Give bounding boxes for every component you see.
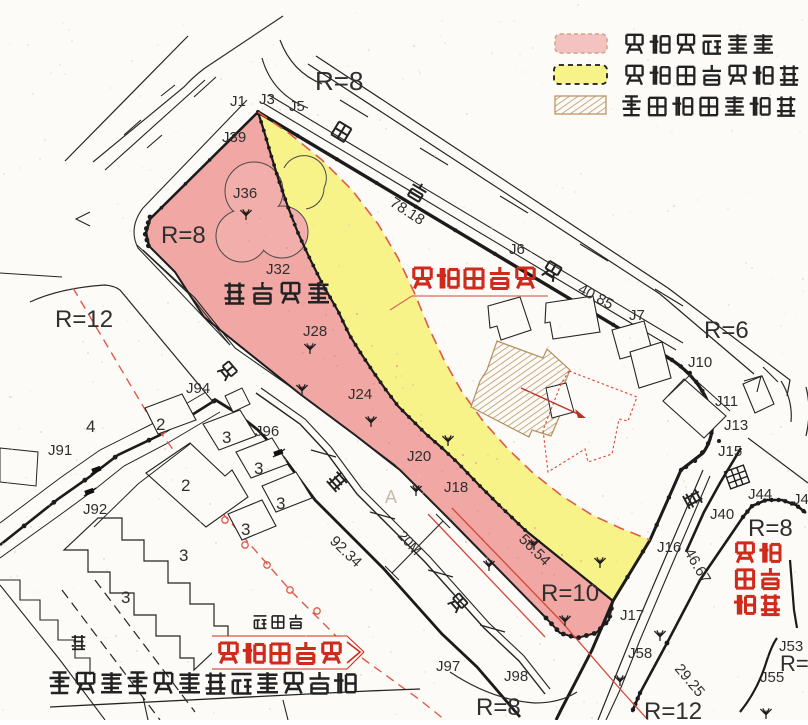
svg-text:R=8: R=8 — [315, 66, 363, 96]
svg-text:J1: J1 — [230, 93, 246, 110]
svg-text:3: 3 — [254, 459, 263, 478]
svg-text:J39: J39 — [222, 129, 246, 146]
svg-text:R=12: R=12 — [644, 698, 702, 720]
svg-text:J7: J7 — [629, 307, 645, 324]
svg-text:R=12: R=12 — [55, 306, 113, 333]
svg-text:J3: J3 — [259, 91, 275, 108]
svg-text:J32: J32 — [266, 261, 290, 278]
svg-text:J15: J15 — [718, 443, 742, 460]
svg-text:3: 3 — [241, 520, 250, 539]
svg-text:3: 3 — [121, 588, 130, 607]
svg-text:J58: J58 — [628, 645, 652, 662]
svg-text:J28: J28 — [303, 323, 327, 340]
svg-text:3: 3 — [222, 428, 231, 447]
svg-text:3: 3 — [276, 494, 285, 513]
svg-text:R=8: R=8 — [748, 515, 793, 542]
svg-text:J17: J17 — [620, 607, 644, 624]
svg-text:J20: J20 — [407, 448, 431, 465]
svg-text:2: 2 — [156, 415, 165, 434]
svg-text:J94: J94 — [186, 380, 210, 397]
svg-text:J96: J96 — [255, 423, 279, 440]
svg-text:J36: J36 — [233, 185, 257, 202]
svg-text:J18: J18 — [444, 479, 468, 496]
svg-text:J98: J98 — [504, 668, 528, 685]
svg-text:3: 3 — [179, 546, 188, 565]
svg-text:J4: J4 — [793, 491, 808, 508]
svg-text:2: 2 — [181, 476, 190, 495]
svg-text:R=8: R=8 — [161, 222, 206, 249]
svg-text:R=: R= — [780, 651, 808, 676]
svg-text:J13: J13 — [724, 417, 748, 434]
svg-text:J10: J10 — [688, 354, 712, 371]
svg-text:A: A — [385, 487, 397, 507]
svg-text:4: 4 — [86, 417, 95, 436]
svg-text:J11: J11 — [715, 393, 738, 410]
svg-text:J91: J91 — [48, 442, 72, 459]
svg-text:J44: J44 — [748, 486, 772, 503]
svg-text:R=10: R=10 — [541, 580, 599, 607]
svg-text:J6: J6 — [509, 241, 525, 258]
svg-text:J24: J24 — [348, 386, 372, 403]
svg-text:J92: J92 — [83, 501, 107, 518]
svg-text:J5: J5 — [289, 98, 305, 115]
svg-text:R=6: R=6 — [704, 317, 749, 344]
svg-text:R=8: R=8 — [476, 694, 521, 720]
svg-text:J97: J97 — [436, 658, 460, 675]
svg-text:J40: J40 — [710, 506, 734, 523]
svg-text:J16: J16 — [657, 539, 681, 556]
